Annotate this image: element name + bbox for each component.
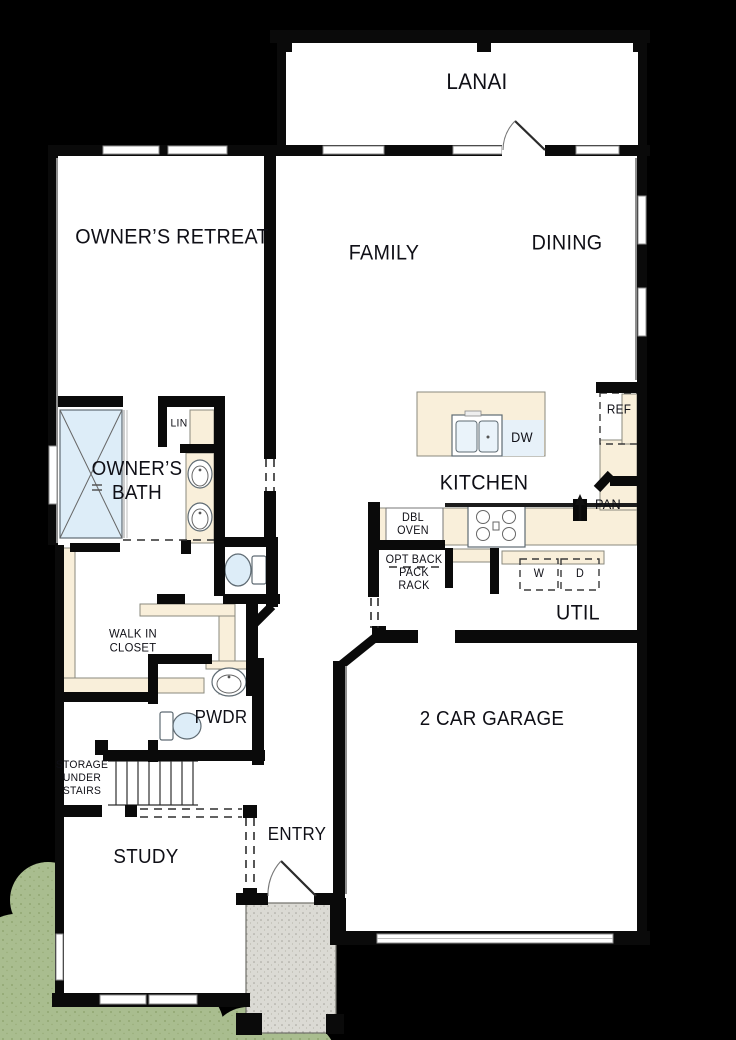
label-pan: PAN <box>595 497 621 513</box>
room-label-kitchen: KITCHEN <box>440 470 529 495</box>
label-lin: LIN <box>171 417 188 430</box>
room-label-owners-bath: OWNER’S BATH <box>92 457 183 505</box>
room-label-lanai: LANAI <box>446 69 507 95</box>
room-label-dining: DINING <box>532 230 603 255</box>
room-label-family: FAMILY <box>349 240 419 265</box>
pwdr-sink <box>212 668 246 696</box>
room-label-walk-in-closet: WALK IN CLOSET <box>109 627 157 656</box>
room-label-util: UTIL <box>556 600 600 625</box>
label-dryer: D <box>576 568 584 582</box>
floor-plan-drawing <box>0 0 736 1040</box>
room-label-owners-retreat: OWNER’S RETREAT <box>75 224 269 249</box>
stove <box>468 506 525 547</box>
label-washer: W <box>534 568 544 582</box>
owners-wc-toilet <box>225 554 266 586</box>
room-label-garage: 2 CAR GARAGE <box>420 707 564 731</box>
floor-plan: LANAI OWNER’S RETREAT FAMILY DINING KITC… <box>0 0 736 1040</box>
porch <box>236 903 344 1035</box>
label-storage-under-stairs: STORAGE UNDER STAIRS <box>56 759 108 799</box>
room-label-study: STUDY <box>113 845 178 869</box>
label-ref: REF <box>607 403 631 418</box>
label-dw: DW <box>511 430 533 446</box>
room-label-pwdr: PWDR <box>195 707 248 729</box>
label-opt-back-pack-rack: OPT BACK PACK RACK <box>386 554 443 594</box>
label-dbl-oven: DBL OVEN <box>397 512 429 538</box>
room-label-entry: ENTRY <box>268 824 326 846</box>
